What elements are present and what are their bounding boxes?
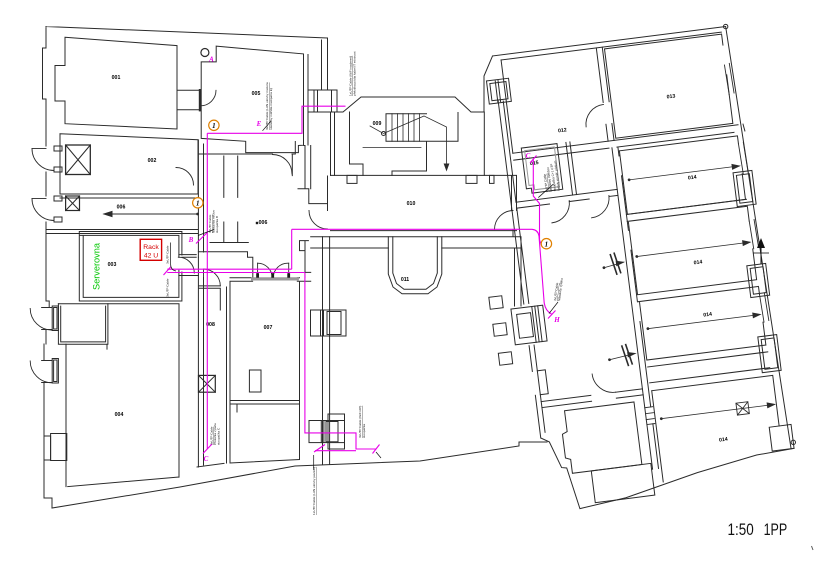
svg-text:006: 006 xyxy=(259,220,268,226)
svg-text:014: 014 xyxy=(719,437,728,444)
svg-text:003: 003 xyxy=(108,262,117,268)
svg-text:010: 010 xyxy=(407,201,416,207)
svg-text:stoupačka: stoupačka xyxy=(362,424,366,438)
svg-text:1xUTP Cable (LAN okruhy pavilo: 1xUTP Cable (LAN okruhy pavilon) xyxy=(312,467,316,515)
svg-text:006: 006 xyxy=(117,205,126,211)
svg-text:002: 002 xyxy=(148,158,157,164)
svg-text:1:50: 1:50 xyxy=(728,521,754,539)
svg-text:011: 011 xyxy=(401,277,409,283)
svg-text:C: C xyxy=(204,455,209,463)
svg-text:012: 012 xyxy=(558,127,567,134)
svg-text:1: 1 xyxy=(196,200,200,208)
svg-text:E: E xyxy=(256,120,262,128)
svg-text:001: 001 xyxy=(112,75,121,81)
svg-text:nástavby měřidla mezipatra E): nástavby měřidla mezipatra E) xyxy=(269,88,273,130)
svg-text:009: 009 xyxy=(373,121,382,127)
svg-text:stoupačka B: stoupačka B xyxy=(215,216,219,233)
svg-text:stoupačka C: stoupačka C xyxy=(217,427,221,445)
svg-text:Serverovna: Serverovna xyxy=(92,242,102,290)
svg-text:C: C xyxy=(526,152,531,160)
svg-text:013: 013 xyxy=(666,93,675,100)
svg-text:42 U: 42 U xyxy=(144,253,158,260)
svg-text:004: 004 xyxy=(115,412,124,418)
svg-text:014: 014 xyxy=(703,312,712,319)
svg-text:007: 007 xyxy=(264,325,273,331)
svg-text:A: A xyxy=(208,56,214,64)
svg-text:014: 014 xyxy=(693,259,702,266)
svg-text:3xUTP Cable: 3xUTP Cable xyxy=(166,278,170,297)
svg-text:1PP: 1PP xyxy=(764,521,788,539)
svg-text:H: H xyxy=(553,316,560,324)
svg-text:1: 1 xyxy=(212,122,216,130)
svg-text:014: 014 xyxy=(688,174,697,181)
svg-text:1: 1 xyxy=(545,240,549,248)
svg-text:Rack: Rack xyxy=(143,244,159,251)
svg-text:3xUTP Cable: 3xUTP Cable xyxy=(166,245,170,264)
svg-text:B: B xyxy=(188,236,194,244)
svg-text:005: 005 xyxy=(252,91,261,97)
svg-text:přeložka pódia kabel IT místno: přeložka pódia kabel IT místnost xyxy=(353,51,357,96)
